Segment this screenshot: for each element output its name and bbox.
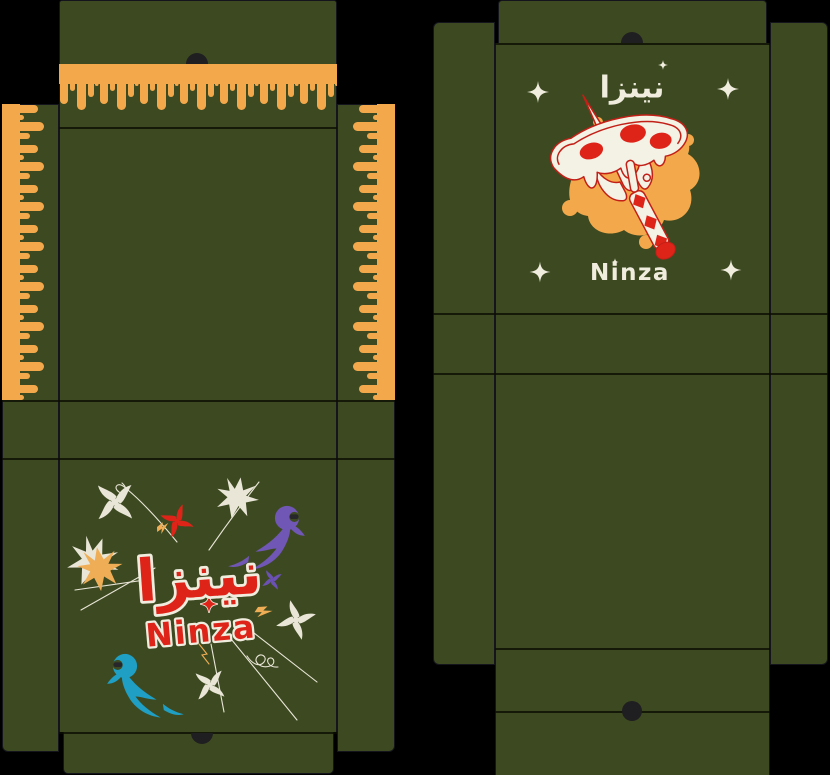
- starburst-icon-white: [213, 474, 262, 523]
- crease-line: [2, 400, 395, 402]
- sparkle-icon: [717, 78, 739, 100]
- starburst-icon-gold: [60, 529, 127, 595]
- sparkle-icon: [721, 260, 742, 281]
- base-logo-latin: Ninza: [144, 607, 258, 655]
- lid-logo: نينزا Ninza: [495, 43, 770, 313]
- base-logo: نينزا Ninza: [59, 458, 337, 732]
- shuriken-icon-white-right: [271, 595, 322, 646]
- drip-edge-right-wall: [347, 104, 395, 400]
- crease-line: [59, 127, 337, 129]
- sparkle-icon: [530, 262, 551, 283]
- crease-line: [495, 648, 770, 650]
- ninja-figure-teal: [107, 654, 184, 718]
- shuriken-icon-white-bottom: [191, 666, 229, 704]
- sparkle-icon-small: [658, 60, 668, 70]
- base-logo-arabic: نينزا: [134, 539, 264, 617]
- drip-edge-left-wall: [2, 104, 50, 400]
- lid-logo-latin: Ninza: [590, 260, 670, 286]
- pizza-box-dieline-artboard: نينزا Ninza: [0, 0, 830, 775]
- right-side-flap-left: [433, 22, 495, 665]
- sparkle-icon: [527, 81, 549, 103]
- finger-hole: [622, 701, 642, 721]
- lid-logo-arabic: نينزا: [600, 71, 665, 106]
- shuriken-icon-red: [159, 503, 194, 538]
- lightning-bolt-icon: [155, 521, 171, 535]
- right-side-flap-right: [770, 22, 828, 665]
- drip-edge-front-wall: [59, 64, 337, 116]
- shuriken-icon-white-top: [90, 477, 141, 528]
- crease-line: [433, 373, 828, 375]
- pizza-sai-emblem: [546, 82, 700, 270]
- crease-line: [433, 313, 828, 315]
